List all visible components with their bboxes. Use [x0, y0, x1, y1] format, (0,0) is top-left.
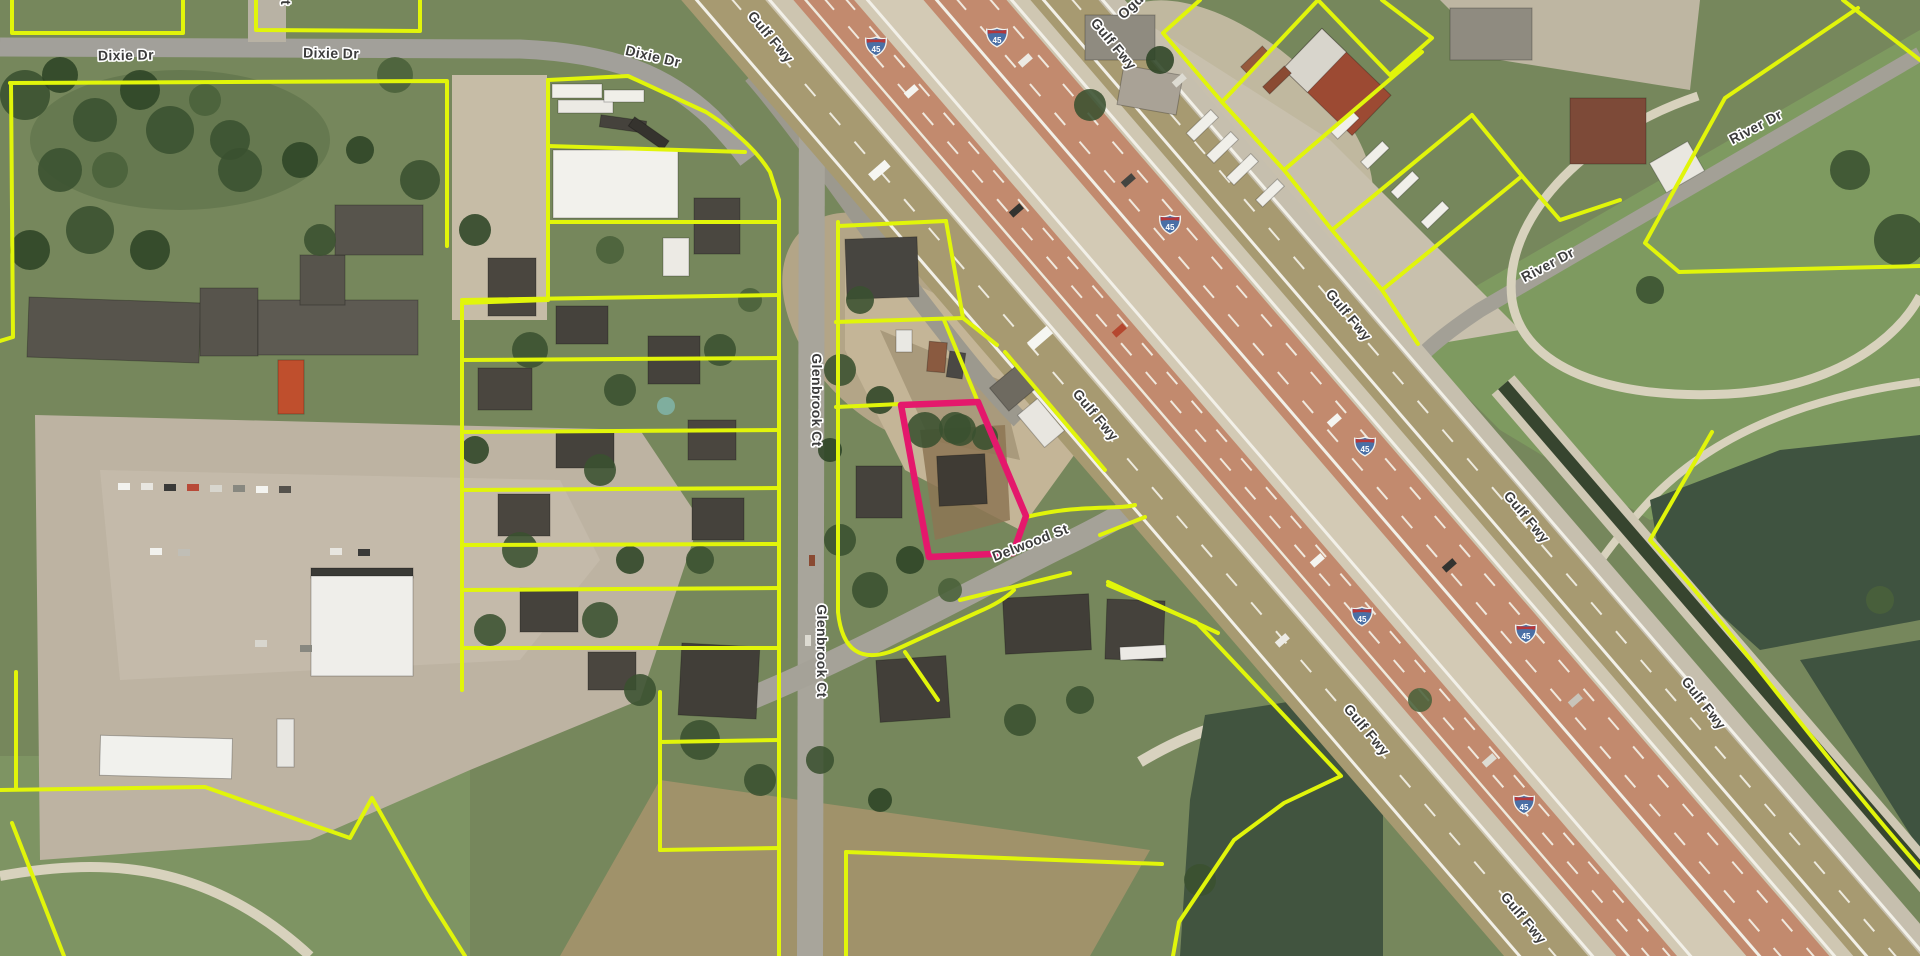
satellite-map[interactable]: 45	[0, 0, 1920, 956]
map-viewport: 45	[0, 0, 1920, 956]
street-car	[805, 635, 811, 646]
street-car	[809, 555, 815, 566]
street-label-glenbrook-ct: Glenbrook Ct	[809, 353, 825, 446]
street-label-dixie-dr: Dixie Dr	[303, 45, 360, 62]
street-label-dixie-dr: Dixie Dr	[98, 47, 155, 64]
street-label-glenbrook-ct: Glenbrook Ct	[814, 604, 830, 697]
satellite-imagery	[0, 0, 1920, 956]
street-label-ct: ct	[278, 0, 294, 5]
